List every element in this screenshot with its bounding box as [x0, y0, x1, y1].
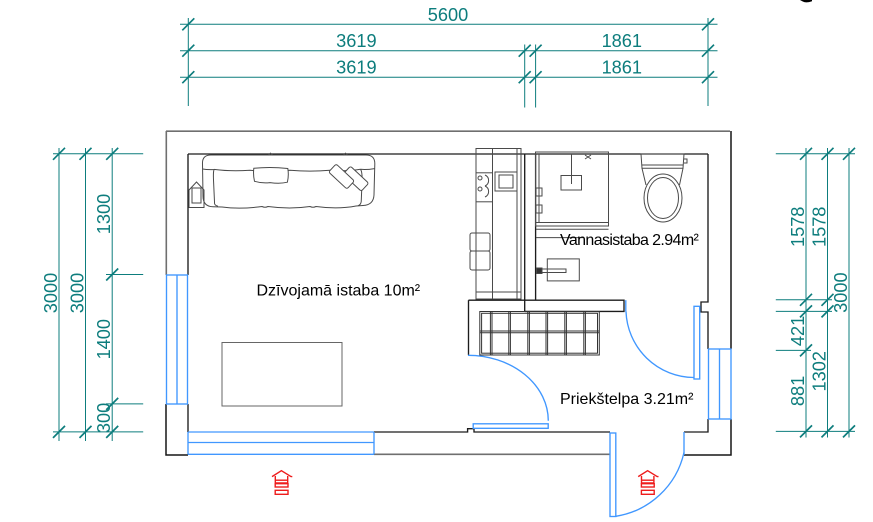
svg-text:3000: 3000	[68, 273, 88, 313]
svg-text:881: 881	[788, 376, 808, 406]
svg-text:1861: 1861	[602, 58, 642, 78]
svg-text:3619: 3619	[336, 58, 376, 78]
svg-text:1400: 1400	[94, 319, 114, 359]
svg-text:3000: 3000	[41, 273, 61, 313]
svg-text:1302: 1302	[810, 351, 830, 391]
svg-text:1578: 1578	[788, 207, 808, 247]
svg-text:421: 421	[788, 316, 808, 346]
svg-text:Vannasistaba 2.94m²: Vannasistaba 2.94m²	[560, 232, 700, 249]
svg-text:1578: 1578	[810, 207, 830, 247]
svg-text:5600: 5600	[428, 5, 468, 25]
svg-text:300: 300	[94, 403, 114, 433]
svg-text:1861: 1861	[602, 31, 642, 51]
svg-text:3000: 3000	[831, 272, 851, 312]
svg-text:3619: 3619	[336, 31, 376, 51]
svg-text:Dzīvojamā istaba 10m²: Dzīvojamā istaba 10m²	[257, 283, 421, 300]
svg-text:1300: 1300	[94, 194, 114, 234]
svg-text:Priekštelpa 3.21m²: Priekštelpa 3.21m²	[560, 391, 694, 408]
